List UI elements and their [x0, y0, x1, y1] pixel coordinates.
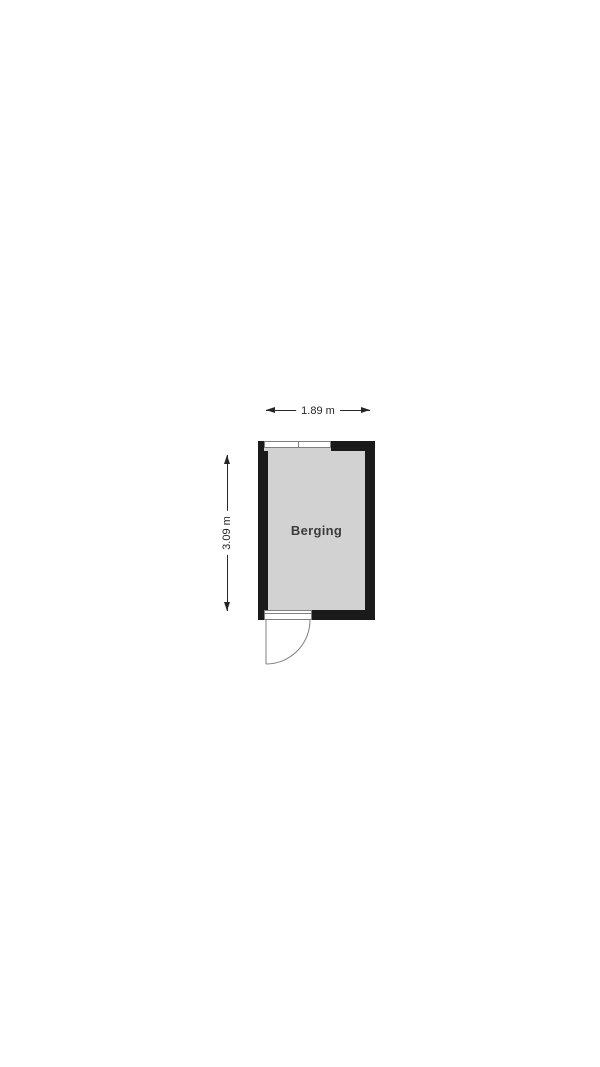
height-dimension-label: 3.09 m	[221, 511, 233, 555]
width-dimension-label: 1.89 m	[296, 405, 340, 417]
arrow-left-icon	[266, 407, 275, 413]
room-label-box: Berging	[268, 451, 365, 610]
arrow-down-icon	[224, 602, 230, 611]
arrow-right-icon	[361, 407, 370, 413]
floor-plan: 1.89 m 3.09 m Berging	[0, 0, 600, 1067]
door-swing-icon	[258, 608, 328, 672]
room-label: Berging	[291, 523, 342, 538]
arrow-up-icon	[224, 455, 230, 464]
window-mullion	[298, 442, 299, 447]
door-arc	[266, 620, 310, 664]
window-icon	[264, 441, 331, 448]
